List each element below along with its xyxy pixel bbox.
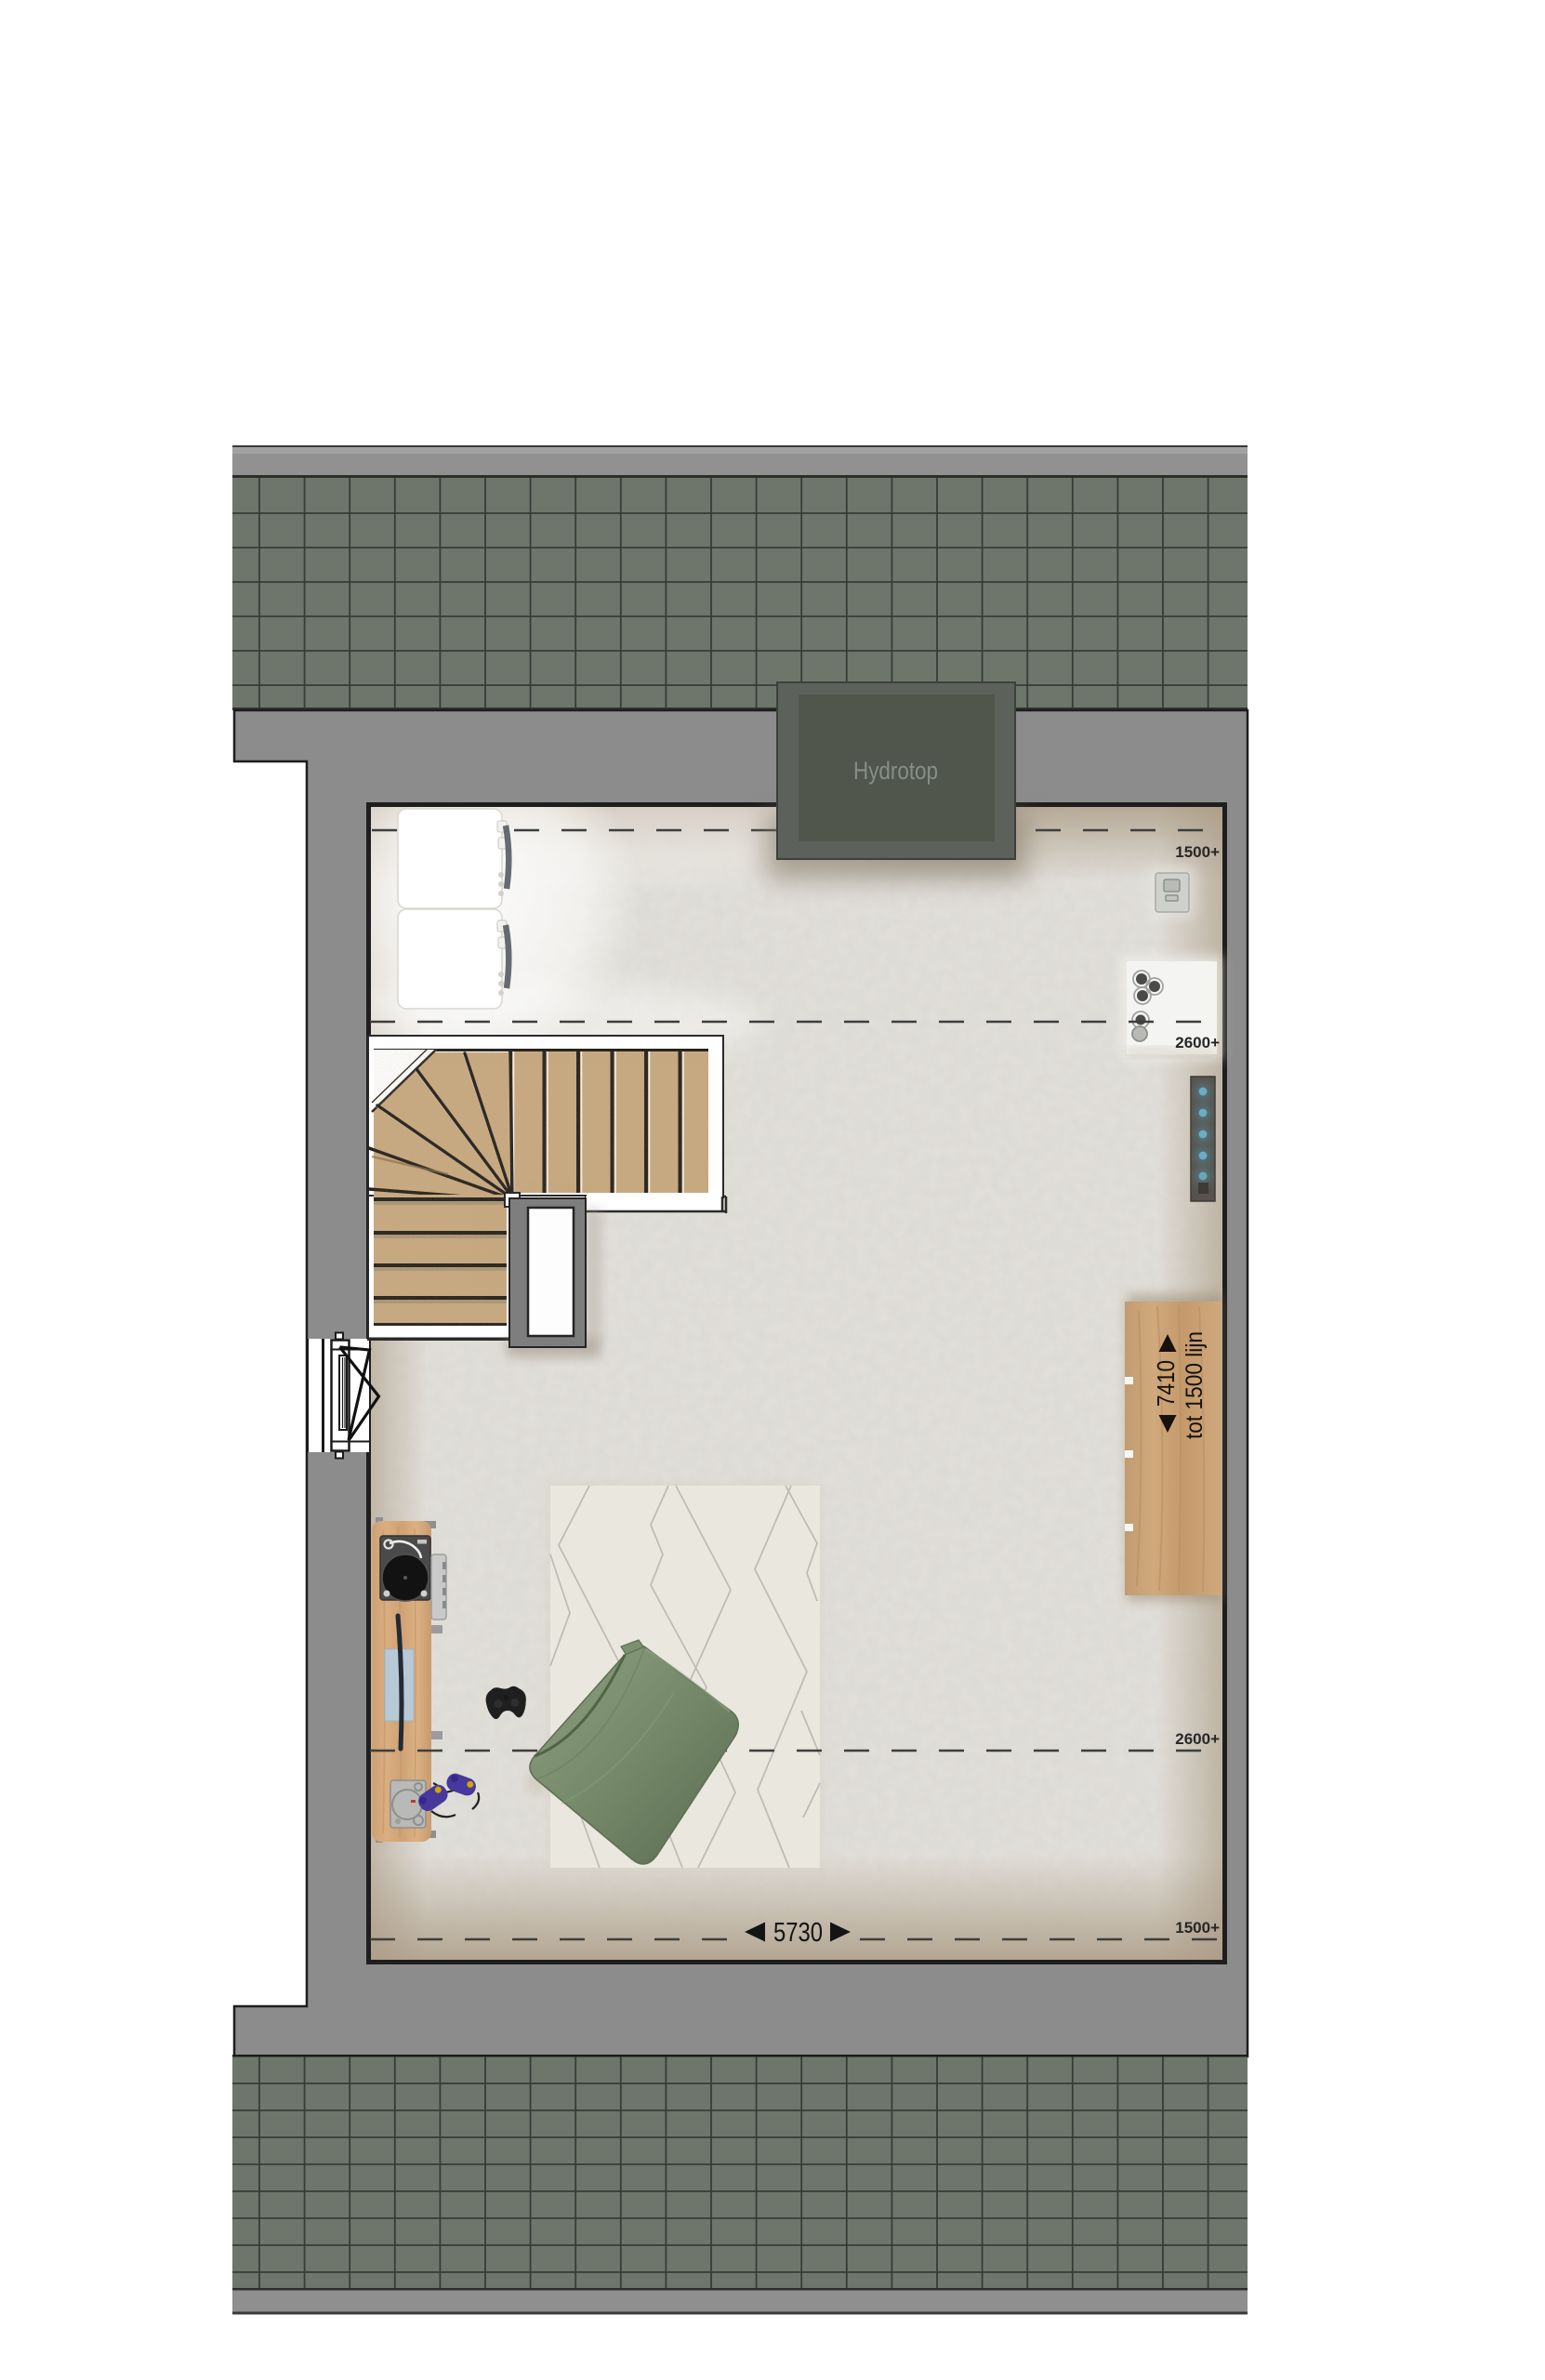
svg-text:7410: 7410 — [1152, 1360, 1180, 1407]
svg-text:1500+: 1500+ — [1175, 843, 1220, 861]
svg-text:2600+: 2600+ — [1175, 1730, 1220, 1748]
svg-text:Hydrotop: Hydrotop — [853, 757, 938, 785]
svg-text:5730: 5730 — [773, 1918, 823, 1948]
svg-text:tot 1500 lijn: tot 1500 lijn — [1182, 1331, 1208, 1439]
svg-text:1500+: 1500+ — [1175, 1919, 1220, 1937]
svg-text:2600+: 2600+ — [1175, 1034, 1220, 1051]
